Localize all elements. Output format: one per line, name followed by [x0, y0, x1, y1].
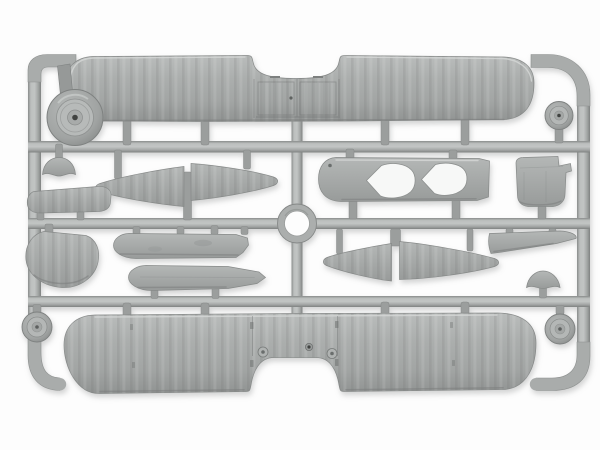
locating-ring-hole: [285, 211, 310, 236]
runner-lower-middle: [28, 296, 590, 307]
fuselage-decking-hole: [328, 164, 332, 168]
wheel-small-tr: [545, 102, 573, 130]
locating-ring: [278, 204, 317, 243]
wheel-small-bl: [22, 312, 52, 342]
upper-wing-shade: [96, 120, 504, 121]
upper-wing-rig-hole: [289, 96, 292, 99]
wheel-small-br: [545, 314, 575, 344]
wheel-large: [47, 90, 103, 146]
sprue-photo: [0, 0, 600, 450]
decking-strip-upper: [114, 234, 249, 259]
runner-upper-middle: [28, 141, 590, 153]
corner-bottom-right-tip: [530, 378, 542, 390]
corner-bottom-left-tip: [54, 378, 66, 390]
wheel-large-hub-hole: [72, 115, 78, 121]
fuselage-decking: [319, 158, 490, 202]
